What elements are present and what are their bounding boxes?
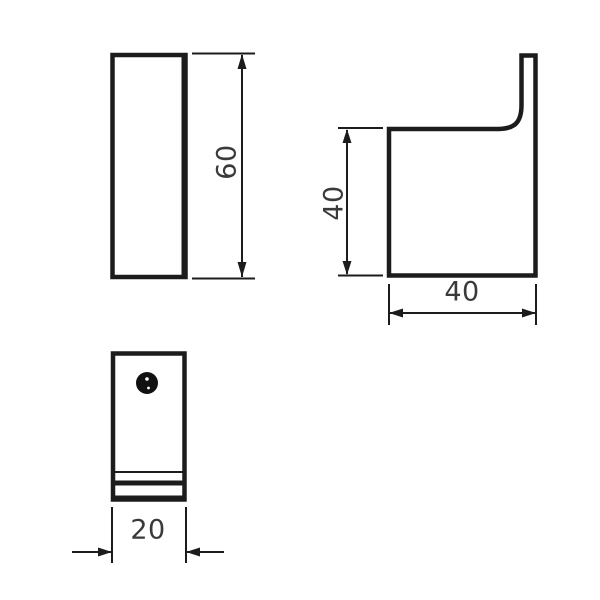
front-view-outline [113,55,186,277]
arrowhead-down-icon [238,262,247,277]
side-view [389,56,536,276]
arrowhead-left-icon [186,548,200,557]
dimension-label-bottom-width: 20 [130,515,165,546]
screw-head-icon [136,372,158,394]
technical-drawing-canvas: 60 40 40 [0,0,600,600]
screw-head-highlight-dot [145,377,149,381]
side-depth-dimension: 40 [389,277,536,325]
arrowhead-right-icon [98,548,112,557]
front-height-dimension: 60 [192,54,255,279]
screw-head-highlight-dot [147,387,150,390]
arrowhead-down-icon [343,261,352,275]
hook-three-view-drawing: 60 40 40 [0,0,600,600]
bottom-width-dimension: 20 [72,507,224,563]
arrowhead-up-icon [343,129,352,143]
dimension-label-side-height: 40 [318,185,349,220]
arrowhead-right-icon [522,309,536,318]
side-view-outline [389,56,536,276]
dimension-label-front-height: 60 [211,144,242,179]
bottom-view [112,354,186,500]
arrowhead-up-icon [238,54,247,69]
arrowhead-left-icon [389,309,403,318]
front-view [113,54,186,278]
dimension-label-side-depth: 40 [444,277,479,308]
side-height-dimension: 40 [318,128,383,276]
